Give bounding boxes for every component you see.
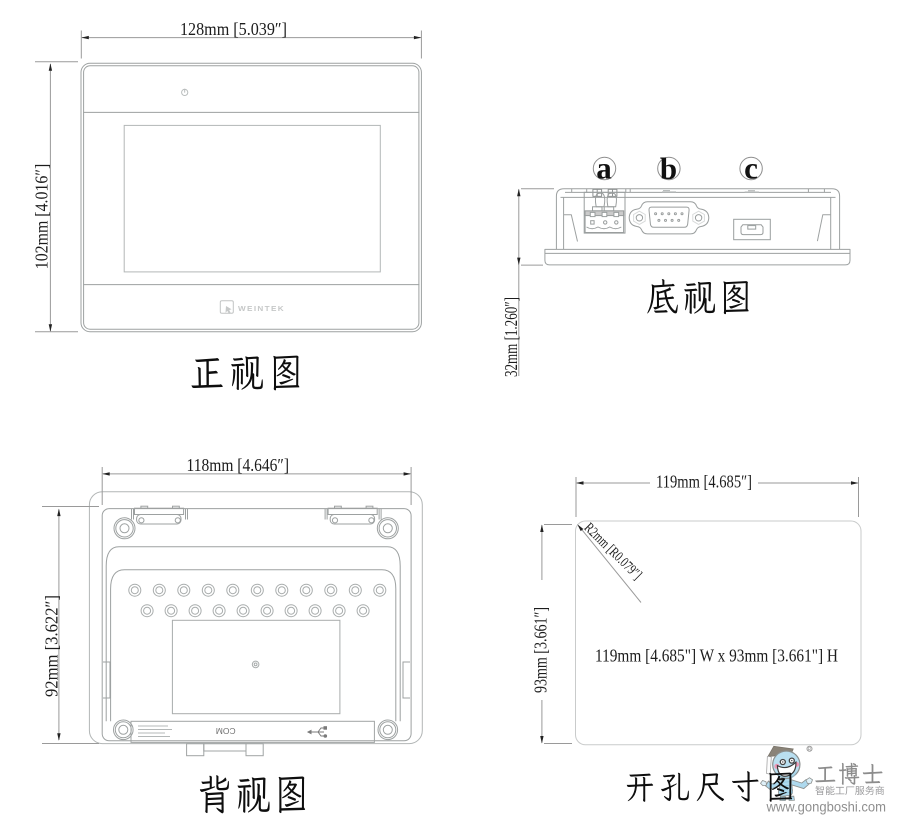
svg-text:92mm [3.622″]: 92mm [3.622″] xyxy=(41,595,61,697)
svg-text:b: b xyxy=(660,151,677,186)
svg-text:c: c xyxy=(744,151,758,186)
svg-text:32mm [1.260″]: 32mm [1.260″] xyxy=(501,297,521,377)
svg-text:R: R xyxy=(808,747,812,753)
svg-text:93mm [3.661″]: 93mm [3.661″] xyxy=(530,607,550,693)
svg-text:102mm [4.016″]: 102mm [4.016″] xyxy=(31,164,51,270)
svg-text:128mm [5.039″]: 128mm [5.039″] xyxy=(180,19,287,39)
svg-text:119mm [4.685″]: 119mm [4.685″] xyxy=(656,472,752,492)
svg-text:118mm [4.646″]: 118mm [4.646″] xyxy=(187,455,290,475)
svg-text:a: a xyxy=(596,151,612,186)
svg-text:119mm [4.685"] W x 93mm [3.66: 119mm [4.685"] W x 93mm [3.661"] H xyxy=(595,646,838,666)
svg-text:COM: COM xyxy=(216,726,236,736)
svg-text:WEINTEK: WEINTEK xyxy=(238,304,285,313)
svg-text:www.gongboshi.com: www.gongboshi.com xyxy=(766,800,886,815)
